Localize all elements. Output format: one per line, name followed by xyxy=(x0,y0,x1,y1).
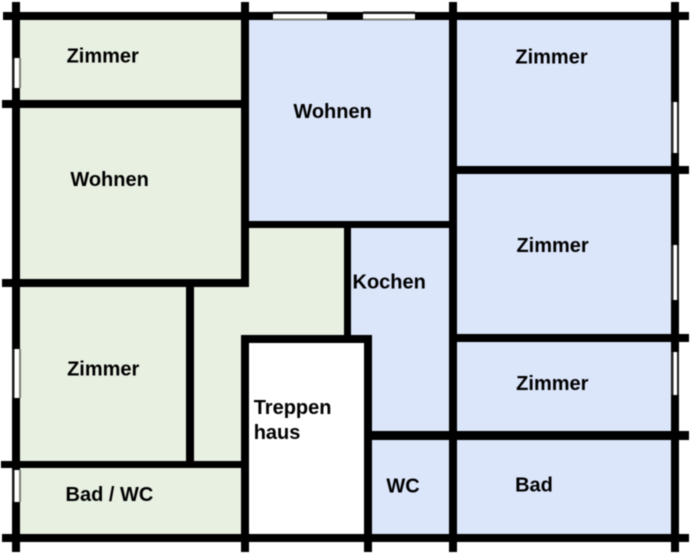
svg-text:Zimmer: Zimmer xyxy=(516,235,588,257)
svg-text:haus: haus xyxy=(254,422,301,444)
svg-text:Kochen: Kochen xyxy=(353,272,426,294)
svg-text:Zimmer: Zimmer xyxy=(516,373,588,395)
svg-text:Zimmer: Zimmer xyxy=(515,47,587,69)
svg-text:WC: WC xyxy=(386,476,419,498)
svg-text:Wohnen: Wohnen xyxy=(70,169,149,191)
svg-text:Wohnen: Wohnen xyxy=(293,101,372,123)
svg-text:Zimmer: Zimmer xyxy=(67,359,139,381)
svg-text:Bad: Bad xyxy=(515,475,553,497)
svg-text:Treppen: Treppen xyxy=(254,397,332,419)
svg-text:Zimmer: Zimmer xyxy=(67,46,139,68)
svg-text:Bad / WC: Bad / WC xyxy=(66,484,154,506)
